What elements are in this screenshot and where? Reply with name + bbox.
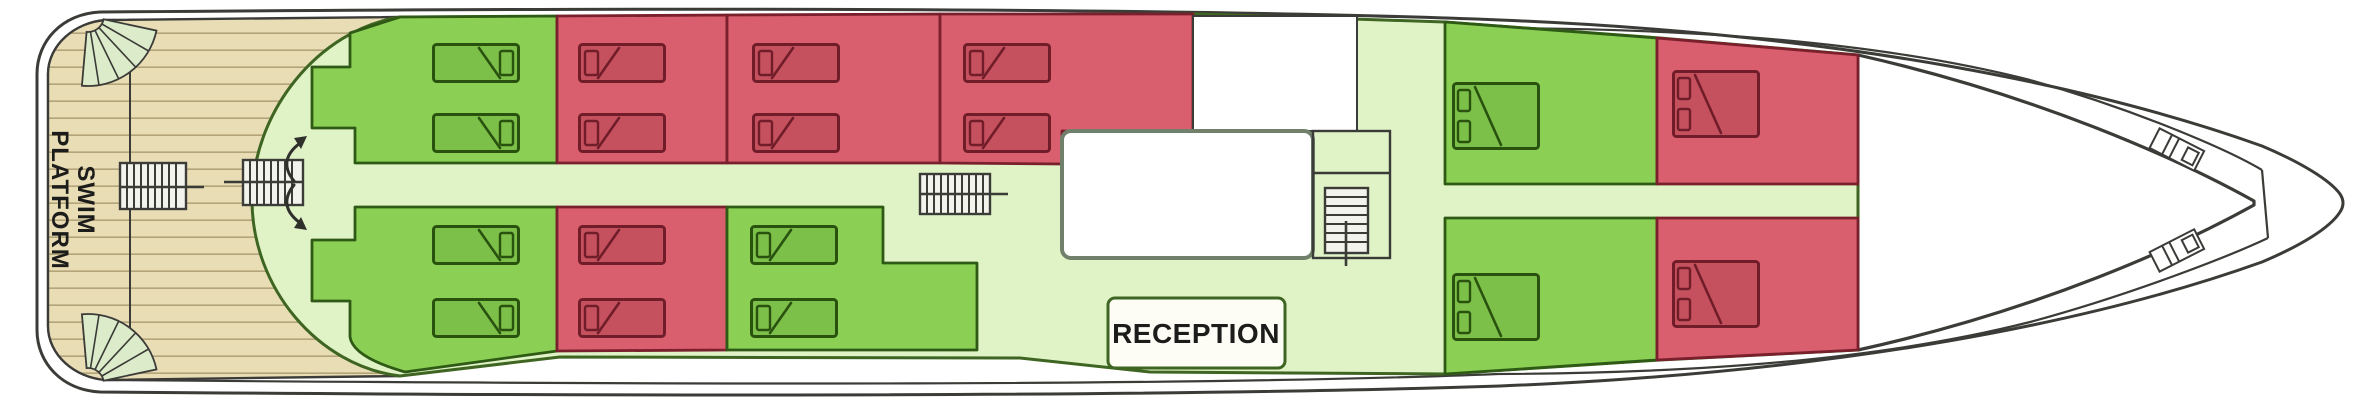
- single-bed-icon: [752, 300, 837, 337]
- single-bed-icon: [434, 115, 519, 152]
- double-bed-icon: [1454, 275, 1539, 340]
- single-bed-icon: [434, 300, 519, 337]
- reception-label: RECEPTION: [1108, 298, 1285, 368]
- deck-plan-svg: RECEPTION SWIM PLATFORM: [0, 0, 2374, 400]
- single-bed-icon: [580, 45, 665, 82]
- double-bed-icon: [1674, 262, 1759, 327]
- deck-plan: RECEPTION SWIM PLATFORM: [0, 0, 2374, 400]
- single-bed-icon: [752, 227, 837, 264]
- swim-platform-label-line2: PLATFORM: [46, 130, 73, 270]
- single-bed-icon: [965, 115, 1050, 152]
- single-bed-icon: [965, 45, 1050, 82]
- void-room-upper: [1193, 16, 1357, 131]
- double-bed-icon: [1454, 84, 1539, 149]
- single-bed-icon: [580, 227, 665, 264]
- double-bed-icon: [1674, 72, 1759, 137]
- single-bed-icon: [434, 227, 519, 264]
- swim-platform-label-line1: SWIM: [72, 165, 99, 234]
- void-room-lower: [1062, 131, 1313, 258]
- single-bed-icon: [434, 45, 519, 82]
- single-bed-icon: [580, 300, 665, 337]
- reception-label-text: RECEPTION: [1112, 318, 1280, 349]
- single-bed-icon: [754, 115, 839, 152]
- single-bed-icon: [754, 45, 839, 82]
- single-bed-icon: [580, 115, 665, 152]
